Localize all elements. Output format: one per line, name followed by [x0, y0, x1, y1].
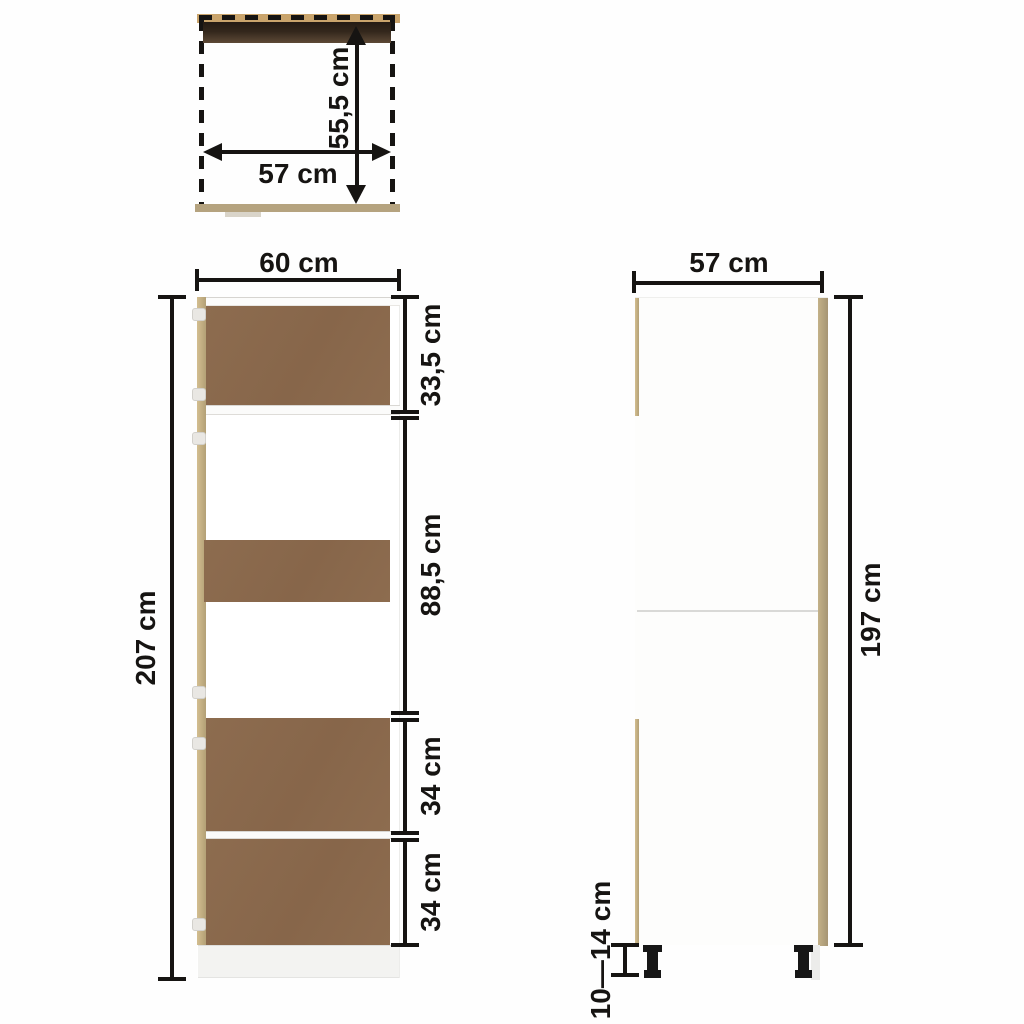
front-middle-panel: [204, 540, 390, 602]
front-door-bottom: [206, 839, 390, 945]
side-front-edge-bottom: [635, 719, 639, 946]
side-door-split-line: [637, 610, 821, 612]
hinge-icon: [192, 308, 206, 321]
front-top-edge: [197, 297, 400, 306]
section-label-1: 33,5 cm: [415, 285, 447, 425]
front-cabinet: [197, 297, 400, 978]
side-width-label: 57 cm: [669, 247, 789, 279]
section-label-2: 88,5 cm: [415, 495, 447, 635]
hinge-icon: [192, 918, 206, 931]
front-height-label: 207 cm: [130, 568, 162, 708]
side-cabinet: [635, 297, 828, 945]
top-view-width-label: 57 cm: [238, 158, 358, 190]
top-view-dashed-border-right: [390, 18, 395, 206]
section-label-4: 34 cm: [415, 832, 447, 952]
front-plinth: [198, 945, 399, 978]
side-width-line: [634, 281, 824, 285]
front-width-line: [197, 278, 400, 282]
hinge-icon: [192, 388, 206, 401]
front-shelf-1: [206, 405, 400, 415]
front-width-label: 60 cm: [239, 247, 359, 279]
top-view-handle-mark: [225, 212, 261, 217]
hinge-icon: [192, 737, 206, 750]
front-door-middle: [206, 718, 390, 831]
top-view-dashed-border-top: [199, 15, 395, 20]
front-shelf-2: [206, 831, 400, 839]
section-label-3: 34 cm: [415, 716, 447, 836]
hinge-icon: [192, 432, 206, 445]
top-view-dashed-border-left: [199, 18, 204, 206]
hinge-icon: [192, 686, 206, 699]
front-width-tick-right: [397, 269, 401, 291]
leg-height-label: 10—14 cm: [585, 860, 617, 1024]
side-front-edge-top: [635, 298, 639, 416]
front-door-top: [206, 306, 390, 405]
top-view-depth-label: 55,5 cm: [323, 28, 355, 168]
arrowhead-right-icon: [372, 143, 391, 161]
side-back-edge: [818, 298, 828, 946]
side-height-label: 197 cm: [855, 540, 887, 680]
dimension-diagram: 55,5 cm 57 cm 60 cm: [0, 0, 1024, 1024]
side-width-tick-right: [820, 271, 824, 293]
top-view-front-edge: [195, 204, 400, 212]
